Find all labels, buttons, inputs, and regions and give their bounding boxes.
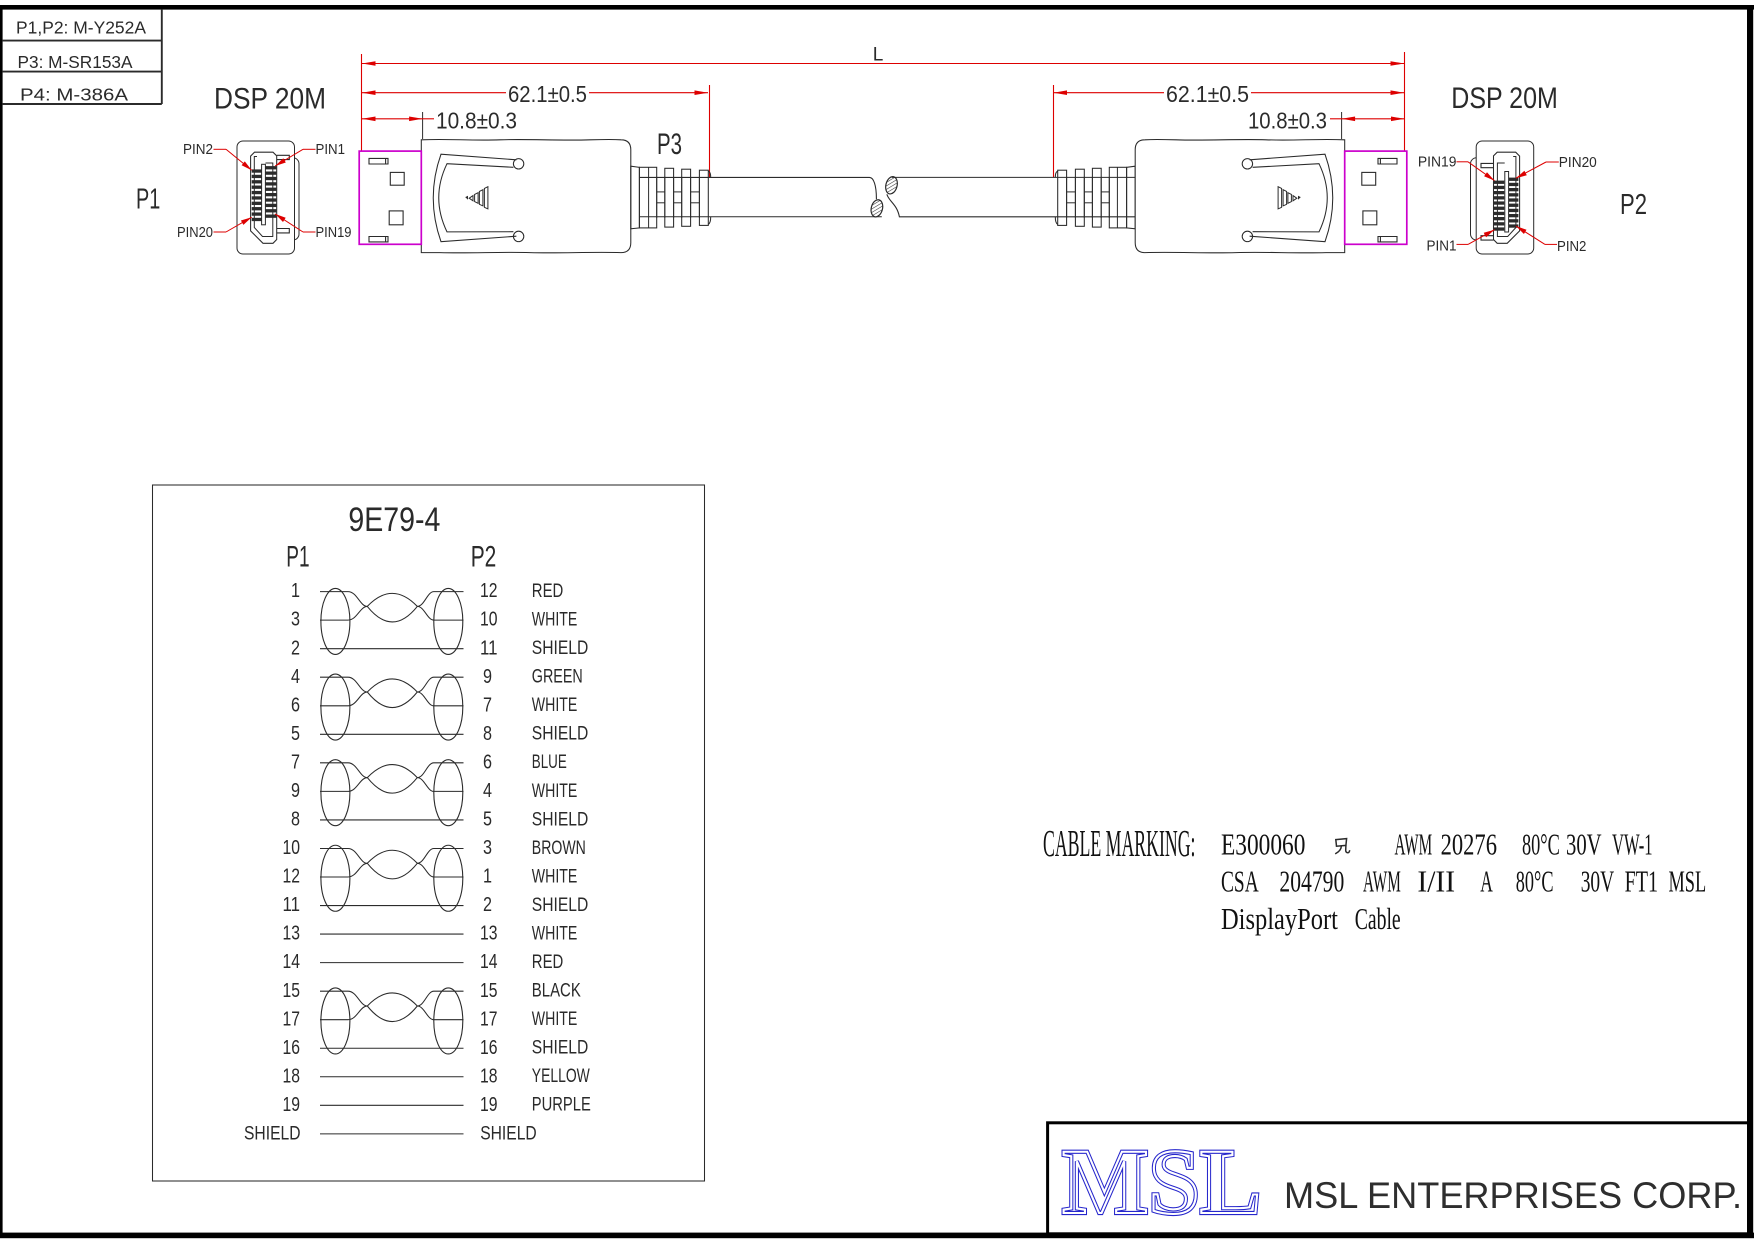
svg-text:L: L — [873, 45, 884, 66]
svg-text:16: 16 — [283, 1036, 301, 1059]
svg-text:P1,P2: M-Y252A: P1,P2: M-Y252A — [16, 18, 146, 38]
svg-text:6: 6 — [483, 750, 492, 773]
svg-text:P2: P2 — [1620, 189, 1647, 221]
svg-text:MSL: MSL — [1062, 1131, 1261, 1234]
svg-text:RED: RED — [532, 951, 564, 973]
svg-text:1: 1 — [291, 579, 300, 602]
svg-text:8: 8 — [483, 722, 492, 745]
svg-text:FT1: FT1 — [1625, 864, 1659, 899]
svg-text:4: 4 — [483, 779, 492, 802]
svg-text:204790: 204790 — [1279, 864, 1344, 899]
svg-text:80°C: 80°C — [1522, 827, 1560, 862]
svg-text:19: 19 — [283, 1093, 301, 1116]
svg-text:80°C: 80°C — [1516, 864, 1554, 899]
svg-text:11: 11 — [480, 636, 498, 659]
svg-text:CSA: CSA — [1221, 864, 1259, 899]
svg-text:AWM: AWM — [1363, 864, 1401, 899]
svg-text:PIN2: PIN2 — [183, 142, 213, 158]
svg-text:30V: 30V — [1566, 827, 1602, 862]
svg-text:GREEN: GREEN — [532, 666, 583, 688]
svg-text:62.1±0.5: 62.1±0.5 — [508, 81, 587, 107]
svg-text:10.8±0.3: 10.8±0.3 — [436, 108, 517, 134]
svg-text:8: 8 — [291, 808, 300, 831]
svg-text:3: 3 — [483, 836, 492, 859]
svg-text:RED: RED — [532, 580, 564, 602]
svg-text:14: 14 — [480, 950, 498, 973]
svg-text:14: 14 — [283, 950, 301, 973]
svg-text:P3: M-SR153A: P3: M-SR153A — [18, 52, 133, 72]
svg-text:MSL ENTERPRISES CORP.: MSL ENTERPRISES CORP. — [1284, 1174, 1742, 1216]
svg-text:AWM: AWM — [1395, 827, 1433, 862]
svg-text:17: 17 — [480, 1007, 498, 1030]
svg-text:P2: P2 — [471, 541, 497, 574]
svg-text:E300060: E300060 — [1221, 827, 1305, 862]
svg-text:DSP 20M: DSP 20M — [1451, 82, 1558, 115]
svg-text:17: 17 — [283, 1007, 301, 1030]
svg-text:18: 18 — [480, 1064, 498, 1087]
svg-text:12: 12 — [480, 579, 498, 602]
svg-text:PIN20: PIN20 — [1559, 155, 1597, 171]
svg-text:SHIELD: SHIELD — [532, 637, 589, 659]
svg-text:DSP 20M: DSP 20M — [214, 83, 326, 116]
svg-text:10: 10 — [480, 608, 498, 631]
svg-text:13: 13 — [283, 922, 301, 945]
svg-text:BROWN: BROWN — [532, 837, 586, 859]
svg-text:SHIELD: SHIELD — [532, 894, 589, 916]
svg-text:18: 18 — [283, 1064, 301, 1087]
svg-text:SHIELD: SHIELD — [532, 1037, 589, 1059]
svg-text:PIN20: PIN20 — [177, 225, 213, 241]
svg-text:VW-1: VW-1 — [1612, 827, 1653, 862]
svg-text:P4: M-386A: P4: M-386A — [20, 85, 128, 105]
svg-text:SHIELD: SHIELD — [532, 723, 589, 745]
svg-text:13: 13 — [480, 922, 498, 945]
svg-text:P1: P1 — [286, 541, 309, 574]
svg-text:WHITE: WHITE — [532, 922, 578, 944]
svg-text:PIN1: PIN1 — [316, 142, 346, 158]
svg-text:19: 19 — [480, 1093, 498, 1116]
svg-text:6: 6 — [291, 693, 300, 716]
svg-text:1: 1 — [483, 865, 492, 888]
svg-text:I/II: I/II — [1417, 864, 1455, 899]
svg-text:BLACK: BLACK — [532, 980, 581, 1002]
svg-text:9: 9 — [483, 665, 492, 688]
svg-text:WHITE: WHITE — [532, 609, 578, 631]
svg-text:CABLE MARKING:: CABLE MARKING: — [1043, 823, 1196, 865]
svg-text:SHIELD: SHIELD — [480, 1122, 537, 1144]
svg-text:P1: P1 — [136, 184, 160, 216]
svg-text:62.1±0.5: 62.1±0.5 — [1166, 81, 1249, 107]
svg-text:PIN1: PIN1 — [1427, 239, 1457, 255]
svg-text:WHITE: WHITE — [532, 694, 578, 716]
svg-text:PIN19: PIN19 — [316, 225, 352, 241]
svg-text:16: 16 — [480, 1036, 498, 1059]
svg-text:7: 7 — [291, 750, 300, 773]
svg-text:Cable: Cable — [1355, 901, 1401, 936]
svg-text:WHITE: WHITE — [532, 865, 578, 887]
svg-text:2: 2 — [483, 893, 492, 916]
svg-text:15: 15 — [480, 979, 498, 1002]
svg-text:9: 9 — [291, 779, 300, 802]
svg-text:15: 15 — [283, 979, 301, 1002]
svg-text:11: 11 — [283, 893, 301, 916]
svg-text:10: 10 — [283, 836, 301, 859]
svg-text:9E79-4: 9E79-4 — [348, 501, 440, 539]
svg-text:BLUE: BLUE — [532, 751, 567, 773]
svg-text:12: 12 — [283, 865, 301, 888]
svg-text:MSL: MSL — [1669, 864, 1707, 899]
svg-text:30V: 30V — [1581, 864, 1615, 899]
svg-text:20276: 20276 — [1441, 827, 1497, 862]
svg-text:7: 7 — [483, 693, 492, 716]
svg-text:4: 4 — [291, 665, 300, 688]
svg-text:SHIELD: SHIELD — [532, 808, 589, 830]
svg-text:A: A — [1480, 864, 1493, 899]
svg-text:PURPLE: PURPLE — [532, 1094, 591, 1116]
svg-text:5: 5 — [291, 722, 300, 745]
svg-text:P3: P3 — [657, 128, 682, 161]
svg-text:PIN2: PIN2 — [1557, 239, 1586, 255]
svg-text:PIN19: PIN19 — [1418, 155, 1457, 171]
svg-text:SHIELD: SHIELD — [244, 1122, 301, 1144]
svg-text:WHITE: WHITE — [532, 1008, 578, 1030]
svg-text:10.8±0.3: 10.8±0.3 — [1248, 108, 1327, 134]
svg-text:DisplayPort: DisplayPort — [1221, 901, 1338, 936]
svg-text:2: 2 — [291, 636, 300, 659]
svg-text:5: 5 — [483, 808, 492, 831]
svg-text:WHITE: WHITE — [532, 780, 578, 802]
svg-text:YELLOW: YELLOW — [532, 1065, 590, 1087]
svg-text:3: 3 — [291, 608, 300, 631]
